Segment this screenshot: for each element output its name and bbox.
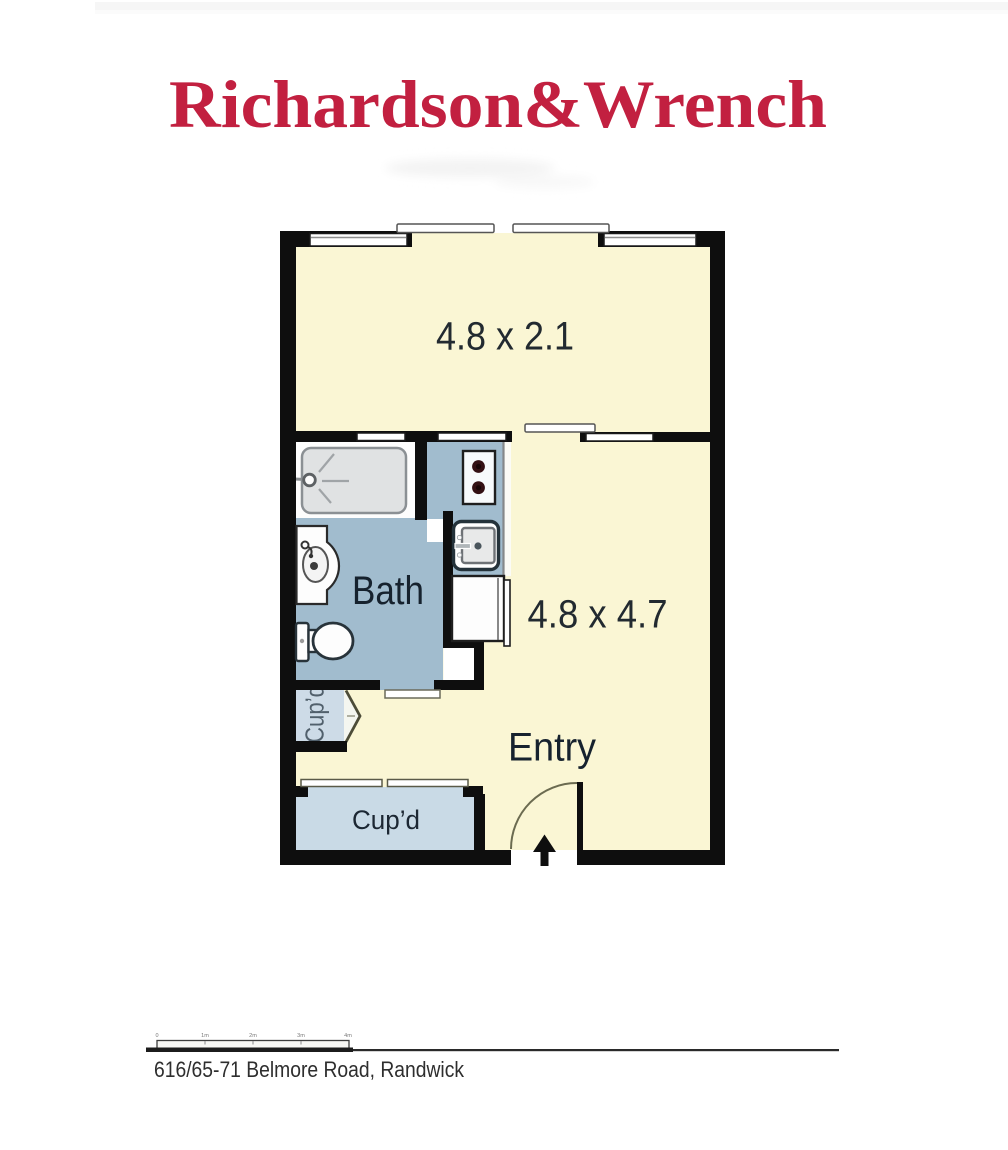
svg-text:Entry: Entry	[508, 726, 596, 770]
svg-text:3m: 3m	[297, 1033, 305, 1039]
svg-text:616/65-71 Belmore Road, Randwi: 616/65-71 Belmore Road, Randwick	[154, 1057, 465, 1082]
svg-text:1m: 1m	[201, 1033, 209, 1039]
svg-text:Richardson&Wrench: Richardson&Wrench	[169, 66, 827, 142]
svg-text:Bath: Bath	[352, 569, 424, 613]
svg-text:Cup’d: Cup’d	[300, 685, 330, 743]
svg-text:4.8 x 2.1: 4.8 x 2.1	[436, 315, 574, 359]
svg-text:0: 0	[155, 1033, 158, 1039]
svg-text:4m: 4m	[344, 1033, 352, 1039]
svg-text:2m: 2m	[249, 1033, 257, 1039]
svg-text:4.8 x 4.7: 4.8 x 4.7	[528, 593, 668, 637]
svg-text:Cup’d: Cup’d	[352, 805, 420, 835]
